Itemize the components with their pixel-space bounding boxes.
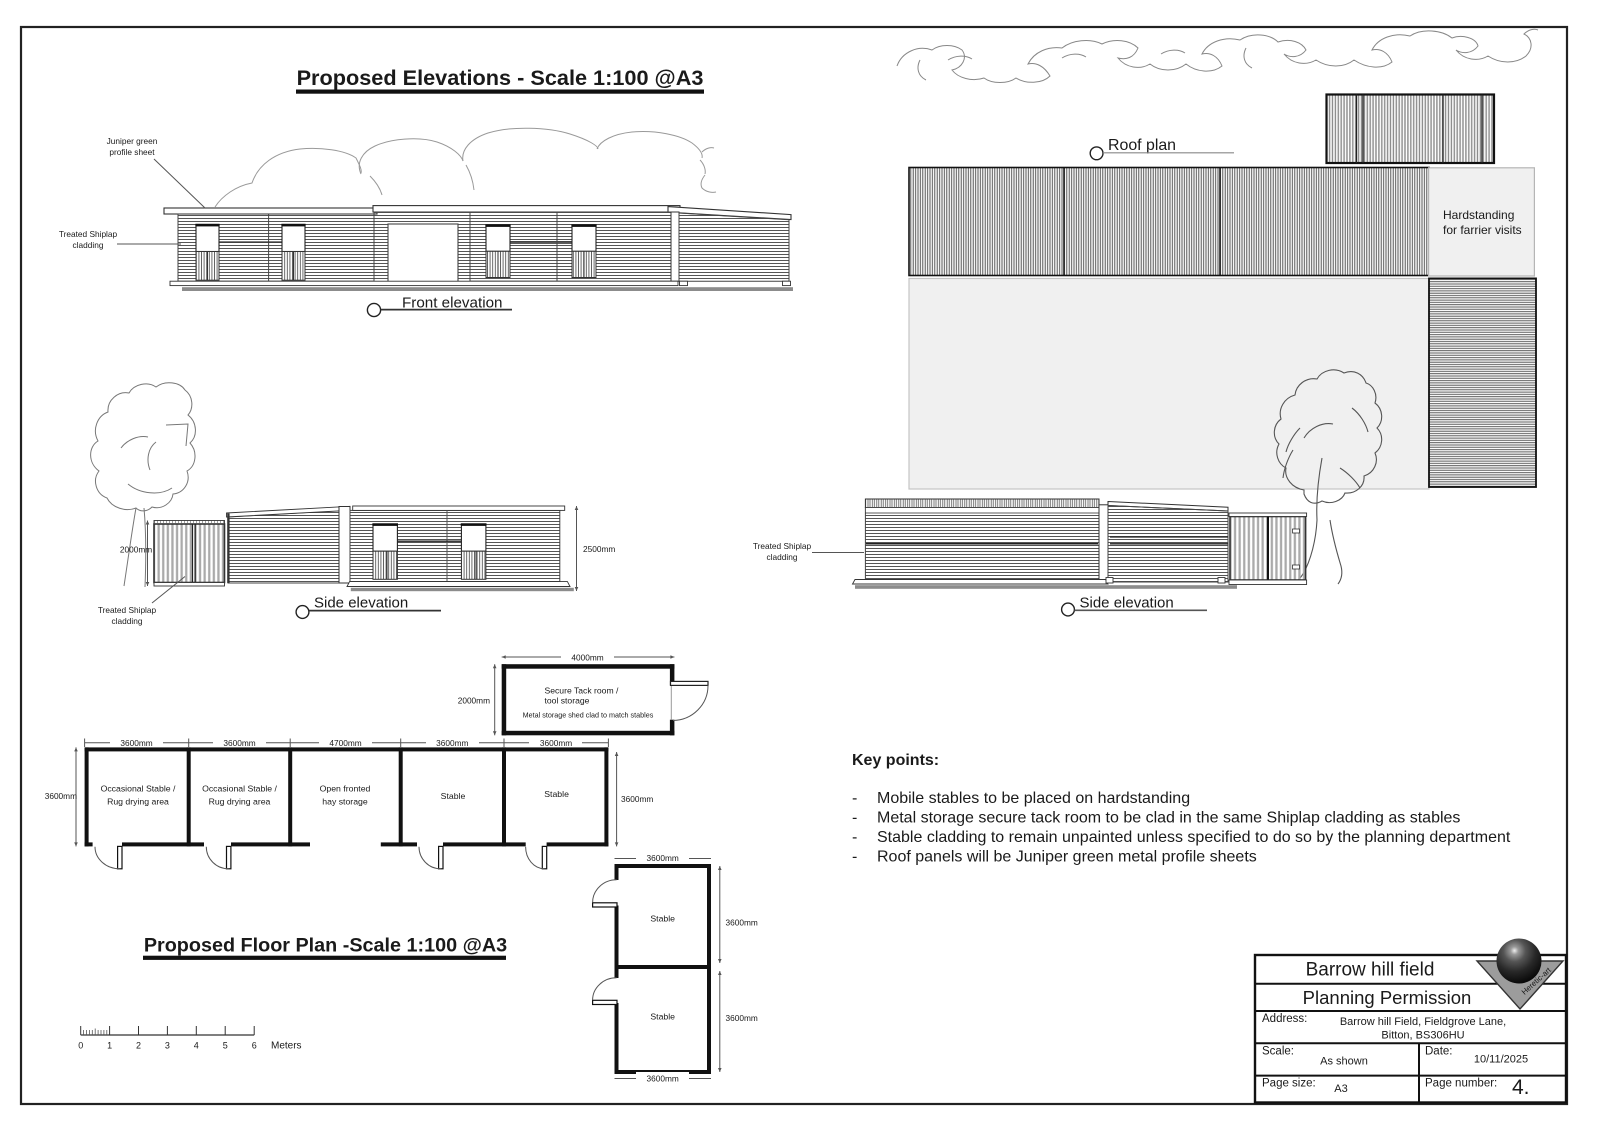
svg-text:4700mm: 4700mm <box>329 738 361 748</box>
svg-text:Proposed Floor Plan -Scale 1:1: Proposed Floor Plan -Scale 1:100 @A3 <box>144 935 507 957</box>
svg-text:Page size:: Page size: <box>1262 1078 1316 1090</box>
svg-text:Stable: Stable <box>441 791 466 801</box>
svg-text:3600mm: 3600mm <box>647 1074 679 1084</box>
svg-text:for farrier visits: for farrier visits <box>1443 223 1522 237</box>
svg-text:Occasional Stable /: Occasional Stable / <box>202 784 277 794</box>
svg-text:Treated Shiplap: Treated Shiplap <box>59 229 118 239</box>
svg-text:3600mm: 3600mm <box>540 738 572 748</box>
svg-text:Treated Shiplap: Treated Shiplap <box>98 605 157 615</box>
svg-text:Stable: Stable <box>544 789 569 799</box>
svg-text:10/11/2025: 10/11/2025 <box>1474 1054 1528 1066</box>
svg-text:Barrow hill Field, Fieldgrove: Barrow hill Field, Fieldgrove Lane, <box>1340 1016 1506 1028</box>
svg-text:-: - <box>852 849 857 866</box>
svg-text:3600mm: 3600mm <box>726 918 758 928</box>
svg-text:Hardstanding: Hardstanding <box>1443 208 1514 222</box>
svg-text:3600mm: 3600mm <box>647 853 679 863</box>
svg-text:4000mm: 4000mm <box>571 653 603 663</box>
svg-text:Stable cladding to remain unpa: Stable cladding to remain unpainted unle… <box>877 829 1511 846</box>
svg-text:2000mm: 2000mm <box>458 696 490 706</box>
svg-text:Rug drying area: Rug drying area <box>107 797 169 807</box>
svg-text:Metal storage secure tack room: Metal storage secure tack room to be cla… <box>877 810 1460 827</box>
svg-text:3600mm: 3600mm <box>436 738 468 748</box>
svg-text:Mobile stables to be placed on: Mobile stables to be placed on hardstand… <box>877 790 1190 807</box>
svg-text:Occasional Stable /: Occasional Stable / <box>101 784 176 794</box>
svg-text:cladding: cladding <box>767 552 798 562</box>
svg-text:1: 1 <box>107 1041 112 1051</box>
svg-text:2000mm: 2000mm <box>120 545 152 555</box>
svg-text:cladding: cladding <box>73 240 104 250</box>
svg-text:Date:: Date: <box>1425 1046 1453 1058</box>
svg-text:As shown: As shown <box>1320 1056 1368 1068</box>
svg-text:Barrow hill field: Barrow hill field <box>1306 960 1435 981</box>
svg-text:3600mm: 3600mm <box>45 791 77 801</box>
svg-text:Metal storage shed clad to mat: Metal storage shed clad to match stables <box>523 711 654 720</box>
svg-text:Stable: Stable <box>650 914 675 924</box>
svg-text:Roof plan: Roof plan <box>1108 137 1176 154</box>
svg-text:-: - <box>852 790 857 807</box>
svg-text:0: 0 <box>78 1041 83 1051</box>
svg-text:Proposed Elevations - Scale 1:: Proposed Elevations - Scale 1:100 @A3 <box>297 65 704 90</box>
svg-text:Roof panels will be Juniper gr: Roof panels will be Juniper green metal … <box>877 849 1257 866</box>
svg-text:Side elevation: Side elevation <box>314 595 408 612</box>
svg-text:hay storage: hay storage <box>322 797 368 807</box>
svg-text:tool storage: tool storage <box>545 696 590 706</box>
svg-text:Page number:: Page number: <box>1425 1078 1497 1090</box>
svg-text:2: 2 <box>136 1041 141 1051</box>
svg-text:A3: A3 <box>1334 1083 1347 1095</box>
svg-text:4: 4 <box>194 1041 199 1051</box>
svg-text:Key points:: Key points: <box>852 752 939 769</box>
svg-text:Scale:: Scale: <box>1262 1046 1294 1058</box>
svg-text:Juniper green: Juniper green <box>107 136 158 146</box>
svg-text:3600mm: 3600mm <box>223 738 255 748</box>
svg-text:Open fronted: Open fronted <box>320 784 371 794</box>
svg-text:Rug drying area: Rug drying area <box>209 797 271 807</box>
svg-text:3: 3 <box>165 1041 170 1051</box>
svg-text:Meters: Meters <box>271 1041 302 1052</box>
svg-text:3600mm: 3600mm <box>120 738 152 748</box>
svg-text:3600mm: 3600mm <box>726 1013 758 1023</box>
svg-text:profile sheet: profile sheet <box>109 147 155 157</box>
svg-text:Secure Tack room /: Secure Tack room / <box>545 686 619 696</box>
svg-text:Stable: Stable <box>650 1012 675 1022</box>
svg-text:cladding: cladding <box>112 616 143 626</box>
svg-text:2500mm: 2500mm <box>583 544 615 554</box>
svg-text:4.: 4. <box>1512 1076 1530 1099</box>
svg-text:Treated Shiplap: Treated Shiplap <box>753 541 812 551</box>
svg-text:Side elevation: Side elevation <box>1080 595 1174 612</box>
svg-text:-: - <box>852 829 857 846</box>
svg-text:-: - <box>852 810 857 827</box>
svg-text:Address:: Address: <box>1262 1013 1307 1025</box>
svg-text:6: 6 <box>252 1041 257 1051</box>
svg-text:Bitton, BS306HU: Bitton, BS306HU <box>1381 1030 1464 1042</box>
svg-text:Planning Permission: Planning Permission <box>1303 987 1472 1008</box>
svg-text:5: 5 <box>223 1041 228 1051</box>
svg-text:3600mm: 3600mm <box>621 794 653 804</box>
